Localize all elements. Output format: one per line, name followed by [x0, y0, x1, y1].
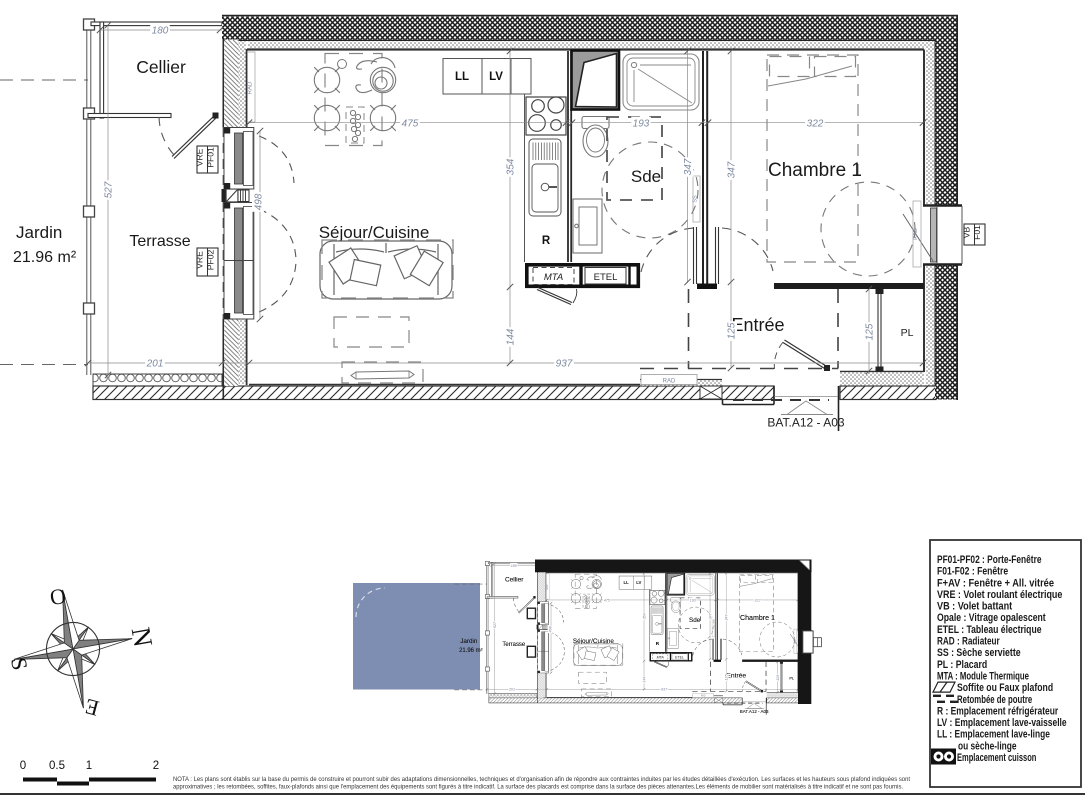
- svg-text:937: 937: [556, 359, 573, 370]
- svg-text:SS : Sèche serviette: SS : Sèche serviette: [937, 647, 1021, 659]
- svg-text:527: 527: [104, 181, 115, 198]
- svg-text:ou sèche-linge: ou sèche-linge: [958, 740, 1017, 752]
- svg-text:RAD: RAD: [248, 81, 254, 94]
- svg-text:F+AV : Fenêtre + All. vitrée: F+AV : Fenêtre + All. vitrée: [937, 577, 1054, 589]
- svg-text:201: 201: [146, 359, 164, 370]
- svg-text:Emplacement cuisson: Emplacement cuisson: [957, 752, 1037, 764]
- svg-text:VB : Volet battant: VB : Volet battant: [937, 601, 1012, 613]
- svg-text:VB: VB: [962, 227, 972, 239]
- svg-text:LL : Emplacement lave-linge: LL : Emplacement lave-linge: [937, 729, 1050, 741]
- svg-text:R : Emplacement réfrigérateur: R : Emplacement réfrigérateur: [937, 705, 1059, 717]
- svg-text:S: S: [6, 656, 33, 672]
- svg-text:2: 2: [153, 760, 159, 772]
- svg-text:F01-F02 : Fenêtre: F01-F02 : Fenêtre: [937, 566, 1008, 578]
- svg-text:Entrée: Entrée: [731, 315, 784, 335]
- svg-text:NOTA : Les plans sont établis: NOTA : Les plans sont établis sur la bas…: [173, 777, 910, 783]
- svg-text:21.96 m²: 21.96 m²: [13, 249, 77, 266]
- svg-text:347: 347: [727, 161, 738, 178]
- svg-text:193: 193: [633, 118, 650, 129]
- svg-text:0.5: 0.5: [49, 760, 65, 772]
- svg-text:125: 125: [727, 322, 738, 339]
- svg-text:LL: LL: [455, 71, 469, 83]
- svg-text:PF01-PF02 : Porte-Fenêtre: PF01-PF02 : Porte-Fenêtre: [937, 554, 1042, 566]
- svg-text:F01: F01: [972, 225, 982, 240]
- svg-text:VRE : Volet roulant électrique: VRE : Volet roulant électrique: [937, 589, 1062, 601]
- svg-text:approximatives ; les retombées: approximatives ; les retombées, soffites…: [173, 785, 903, 791]
- svg-text:BAT.A12 - A03: BAT.A12 - A03: [767, 416, 844, 430]
- svg-text:Séjour/Cuisine: Séjour/Cuisine: [319, 223, 430, 242]
- svg-text:347: 347: [683, 158, 694, 175]
- svg-text:475: 475: [402, 118, 419, 129]
- svg-text:N: N: [126, 625, 159, 649]
- svg-text:RAD : Radiateur: RAD : Radiateur: [937, 636, 1000, 648]
- svg-text:LV: LV: [489, 71, 503, 83]
- svg-text:E: E: [82, 694, 101, 722]
- svg-text:VRE: VRE: [195, 148, 205, 166]
- svg-text:ETEL: ETEL: [594, 272, 618, 283]
- svg-text:Jardin: Jardin: [16, 223, 62, 242]
- svg-text:498: 498: [254, 193, 265, 210]
- svg-text:144: 144: [506, 328, 517, 345]
- svg-text:322: 322: [807, 118, 824, 129]
- svg-text:R: R: [542, 235, 551, 247]
- svg-text:354: 354: [506, 158, 517, 175]
- svg-text:Chambre 1: Chambre 1: [768, 160, 862, 181]
- svg-text:RAD: RAD: [663, 379, 676, 385]
- svg-text:Sde: Sde: [631, 167, 661, 186]
- svg-text:0: 0: [20, 760, 26, 772]
- svg-text:PL: PL: [901, 327, 914, 339]
- svg-text:PL : Placard: PL : Placard: [937, 659, 987, 671]
- svg-text:Opale : Vitrage opalescent: Opale : Vitrage opalescent: [937, 612, 1046, 624]
- svg-text:Terrasse: Terrasse: [129, 233, 190, 250]
- svg-text:PF02: PF02: [206, 250, 216, 271]
- svg-text:1: 1: [86, 760, 92, 772]
- svg-text:MTA : Module Thermique: MTA : Module Thermique: [937, 671, 1029, 683]
- svg-text:O: O: [48, 583, 68, 610]
- svg-text:Cellier: Cellier: [136, 57, 186, 77]
- svg-text:PF01: PF01: [206, 147, 216, 168]
- svg-text:Retombée de poutre: Retombée de poutre: [957, 694, 1032, 706]
- svg-text:LV : Emplacement lave-vaissell: LV : Emplacement lave-vaisselle: [937, 717, 1067, 729]
- svg-text:MTA: MTA: [544, 272, 563, 283]
- svg-text:ETEL : Tableau électrique: ETEL : Tableau électrique: [937, 624, 1042, 636]
- svg-text:125: 125: [865, 323, 876, 340]
- svg-text:180: 180: [152, 26, 169, 37]
- svg-text:RAD: RAD: [913, 228, 919, 240]
- svg-text:Soffite ou Faux plafond: Soffite ou Faux plafond: [957, 682, 1053, 694]
- svg-text:VRE: VRE: [195, 251, 205, 269]
